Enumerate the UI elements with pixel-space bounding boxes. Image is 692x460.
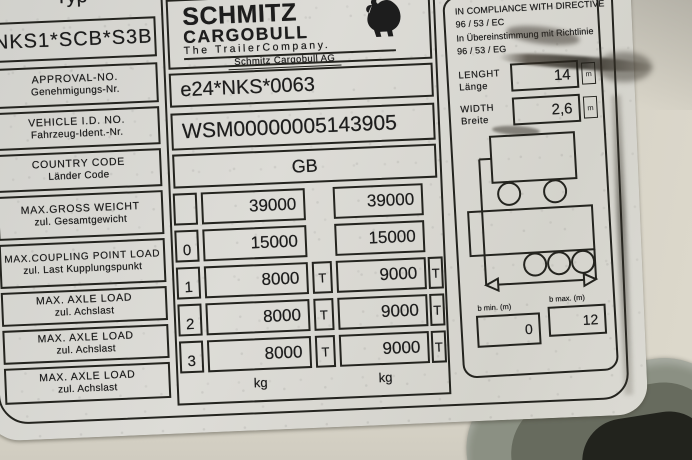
scratch-blob — [596, 52, 652, 82]
elephant-icon — [362, 0, 408, 42]
unit-right: T — [428, 256, 444, 289]
label-gross-weight: MAX.GROSS WEICHT zul. Gesamtgewicht — [0, 190, 164, 241]
width-unit: m — [587, 103, 594, 112]
weight-right: 9000 — [337, 294, 428, 330]
table-row: 2 8000 T 9000 T — [177, 293, 446, 336]
row-index: 0 — [174, 230, 199, 263]
unit-left: T — [313, 298, 334, 331]
trailer-axle-diagram — [458, 127, 613, 301]
row-index: 1 — [176, 267, 201, 300]
vin-value: WSM00000005143905 — [182, 111, 398, 144]
type-code-value: NKS1*SCB*S3B — [0, 24, 153, 56]
weight-left: 8000 — [207, 336, 312, 372]
unit-left: T — [315, 335, 336, 368]
width-label: WIDTH Breite — [460, 103, 495, 130]
unit-left — [310, 224, 331, 257]
width-value-box: 2,6 — [512, 94, 581, 126]
label-axle2-de: zul. Achslast — [56, 343, 116, 358]
weight-left: 39000 — [201, 188, 306, 224]
table-row: 0 15000 15000 — [174, 219, 443, 262]
length-label: LENGHT Länge — [458, 68, 501, 95]
row-index — [173, 193, 198, 226]
label-approval-de: Genehmigungs-Nr. — [31, 84, 120, 100]
b-max-value: 12 — [582, 311, 598, 328]
b-max-value-box: 12 — [548, 304, 608, 337]
label-axle-load-1: MAX. AXLE LOAD zul. Achslast — [1, 286, 168, 327]
type-code-box: NKS1*SCB*S3B — [0, 16, 157, 63]
compliance-line-en: IN COMPLIANCE WITH DIRECTIVE — [455, 0, 605, 17]
label-country-de: Länder Code — [48, 170, 110, 185]
brand-logo-box: SCHMITZ CARGOBULL The TrailerCompany. Sc… — [166, 0, 433, 70]
weight-left: 8000 — [205, 299, 310, 335]
compliance-directive-ec: 96 / 53 / EC — [455, 17, 504, 30]
photo-background: Typ NKS1*SCB*S3B APPROVAL-NO. Genehmigun… — [0, 0, 692, 460]
approval-no-value: e24*NKS*0063 — [180, 73, 315, 102]
unit-left — [309, 187, 330, 220]
width-value: 2,6 — [551, 100, 573, 118]
table-row: 3 8000 T 9000 T — [179, 330, 448, 373]
b-max-label: b max. (m) — [549, 293, 585, 304]
weight-left: 15000 — [202, 225, 307, 261]
label-axle1-de: zul. Achslast — [55, 306, 115, 321]
weight-table: 39000 39000 0 15000 15000 1 8000 T 9000 … — [173, 182, 449, 393]
unit-right — [426, 219, 442, 252]
label-axle3-de: zul. Achslast — [58, 382, 118, 397]
b-min-label: b min. (m) — [477, 302, 511, 313]
width-unit-box: m — [583, 96, 598, 119]
row-index: 3 — [179, 341, 204, 374]
weight-right: 15000 — [334, 220, 425, 256]
country-code-value: GB — [291, 155, 318, 177]
unit-right: T — [431, 330, 447, 363]
unit-right: T — [429, 293, 445, 326]
brand-wordmark: SCHMITZ CARGOBULL — [182, 1, 309, 45]
width-label-en: WIDTH — [460, 103, 494, 117]
label-country-code: COUNTRY CODE Länder Code — [0, 148, 162, 193]
label-gross-de: zul. Gesamtgewicht — [34, 214, 127, 230]
b-min-value-box: 0 — [476, 312, 542, 348]
width-label-de: Breite — [461, 115, 495, 129]
unit-left: T — [312, 261, 333, 294]
label-vehicle-id-de: Fahrzeug-Ident.-Nr. — [31, 127, 124, 143]
weight-right: 9000 — [339, 331, 430, 367]
unit-right — [425, 182, 441, 215]
length-label-de: Länge — [459, 81, 501, 96]
label-coupling-load: MAX.COUPLING POINT LOAD zul. Last Kupplu… — [0, 238, 166, 289]
weight-left: 8000 — [204, 262, 309, 298]
label-approval-no: APPROVAL-NO. Genehmigungs-Nr. — [0, 62, 159, 109]
label-axle-load-3: MAX. AXLE LOAD zul. Achslast — [4, 362, 171, 405]
b-min-value: 0 — [525, 321, 534, 337]
label-axle-load-2: MAX. AXLE LOAD zul. Achslast — [2, 324, 169, 365]
label-vehicle-id: VEHICLE I.D. NO. Fahrzeug-Ident.-Nr. — [0, 106, 161, 151]
weight-right: 9000 — [336, 257, 427, 293]
row-index: 2 — [177, 304, 202, 337]
weight-right: 39000 — [333, 183, 424, 219]
table-row: 1 8000 T 9000 T — [176, 256, 445, 299]
